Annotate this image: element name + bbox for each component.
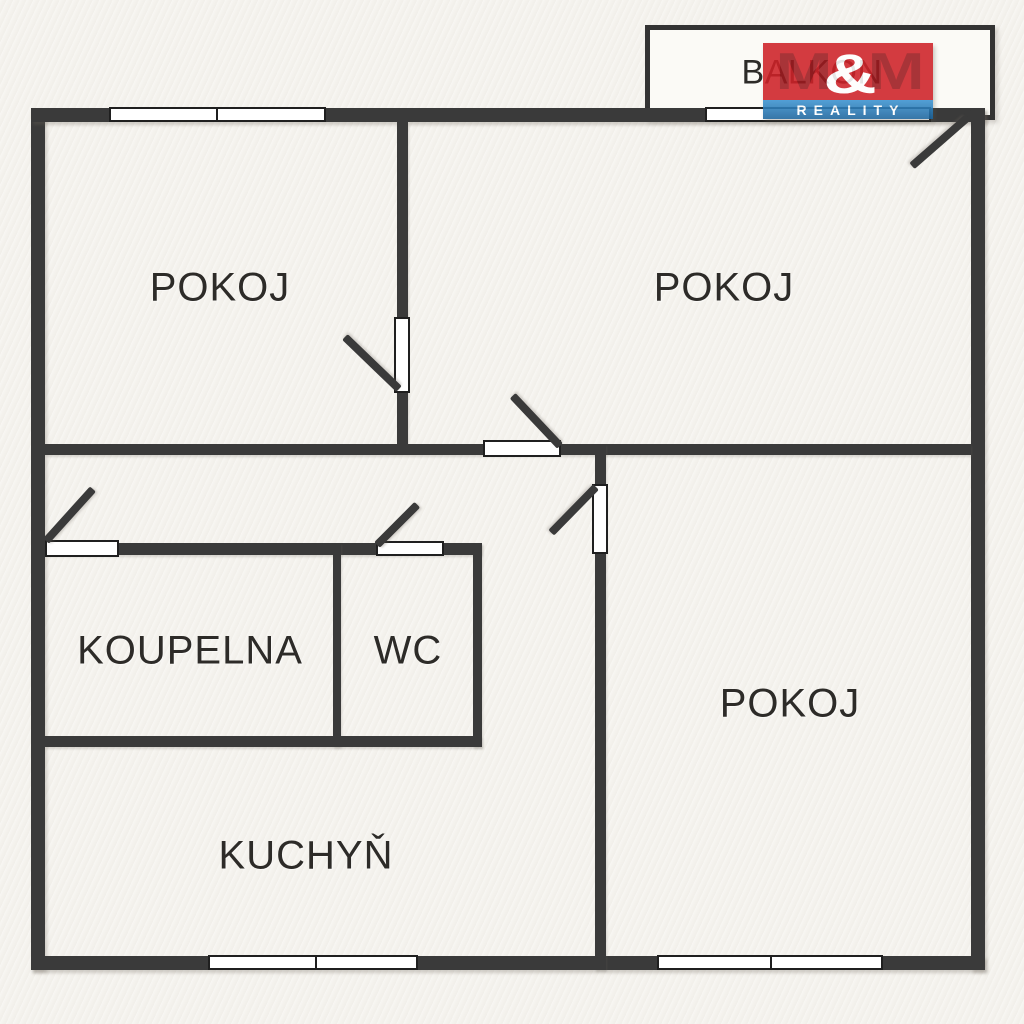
door-swing-top-rooms [342, 334, 402, 392]
window-divider [216, 107, 218, 122]
door-koupelna [45, 540, 119, 557]
floor-plan: POKOJ POKOJ POKOJ KOUPELNA WC KUCHYŇ BAL… [0, 0, 1024, 1024]
room-label-kuchyn: KUCHYŇ [219, 834, 394, 879]
wall-between-top-rooms [397, 122, 408, 452]
window-right-room [657, 955, 883, 970]
door-top-right-room [483, 440, 561, 457]
room-label-koupelna: KOUPELNA [77, 629, 303, 674]
door-right-room [592, 484, 608, 554]
window-divider [315, 955, 317, 970]
door-swing-balcony [909, 115, 969, 169]
mm-reality-logo: M&M REALITY [763, 43, 933, 119]
door-swing-koupelna [43, 486, 96, 543]
window-top-left-room [109, 107, 326, 122]
room-label-pokoj-right: POKOJ [720, 682, 861, 727]
mm-reality-logo-mark: M&M [763, 43, 933, 100]
logo-ampersand: & [823, 46, 872, 101]
wall-bathroom-bottom [45, 736, 482, 747]
logo-letter-m2: M [867, 46, 920, 98]
door-wc [376, 541, 444, 556]
room-label-pokoj-top-left: POKOJ [150, 266, 291, 311]
window-kitchen [208, 955, 418, 970]
room-label-pokoj-top-right: POKOJ [654, 266, 795, 311]
mm-reality-logo-subtitle: REALITY [763, 100, 933, 119]
wall-koupelna-wc [333, 543, 341, 747]
outer-wall-right [971, 108, 985, 970]
window-divider [770, 955, 772, 970]
logo-letter-m1: M [775, 46, 828, 98]
room-label-wc: WC [374, 629, 443, 674]
wall-wc-right [473, 543, 482, 747]
